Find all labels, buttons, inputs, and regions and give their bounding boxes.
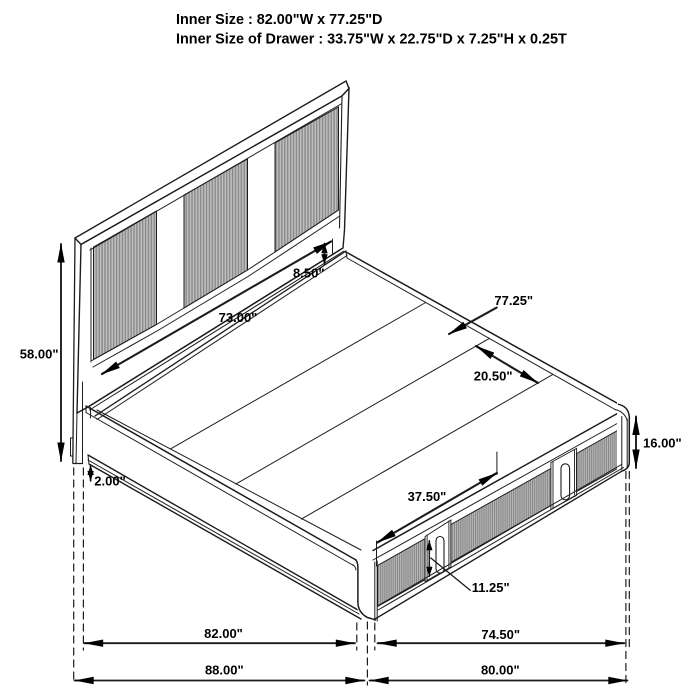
svg-text:74.50": 74.50"	[481, 627, 520, 642]
svg-text:80.00": 80.00"	[481, 663, 520, 678]
svg-text:73.00": 73.00"	[219, 310, 258, 325]
svg-text:2.00": 2.00"	[94, 474, 125, 489]
svg-text:88.00": 88.00"	[205, 662, 244, 677]
svg-text:Inner Size : 82.00"W x 77.25"D: Inner Size : 82.00"W x 77.25"D	[176, 12, 382, 28]
svg-text:37.50": 37.50"	[408, 489, 447, 504]
svg-text:11.25": 11.25"	[472, 580, 510, 595]
svg-text:20.50": 20.50"	[474, 369, 513, 384]
svg-text:82.00": 82.00"	[204, 626, 243, 641]
svg-text:8.50": 8.50"	[293, 266, 324, 281]
svg-text:58.00": 58.00"	[20, 347, 59, 362]
svg-text:Inner Size of Drawer : 33.75"W: Inner Size of Drawer : 33.75"W x 22.75"D…	[176, 32, 567, 48]
svg-text:77.25": 77.25"	[494, 293, 533, 308]
svg-text:16.00": 16.00"	[643, 436, 682, 451]
